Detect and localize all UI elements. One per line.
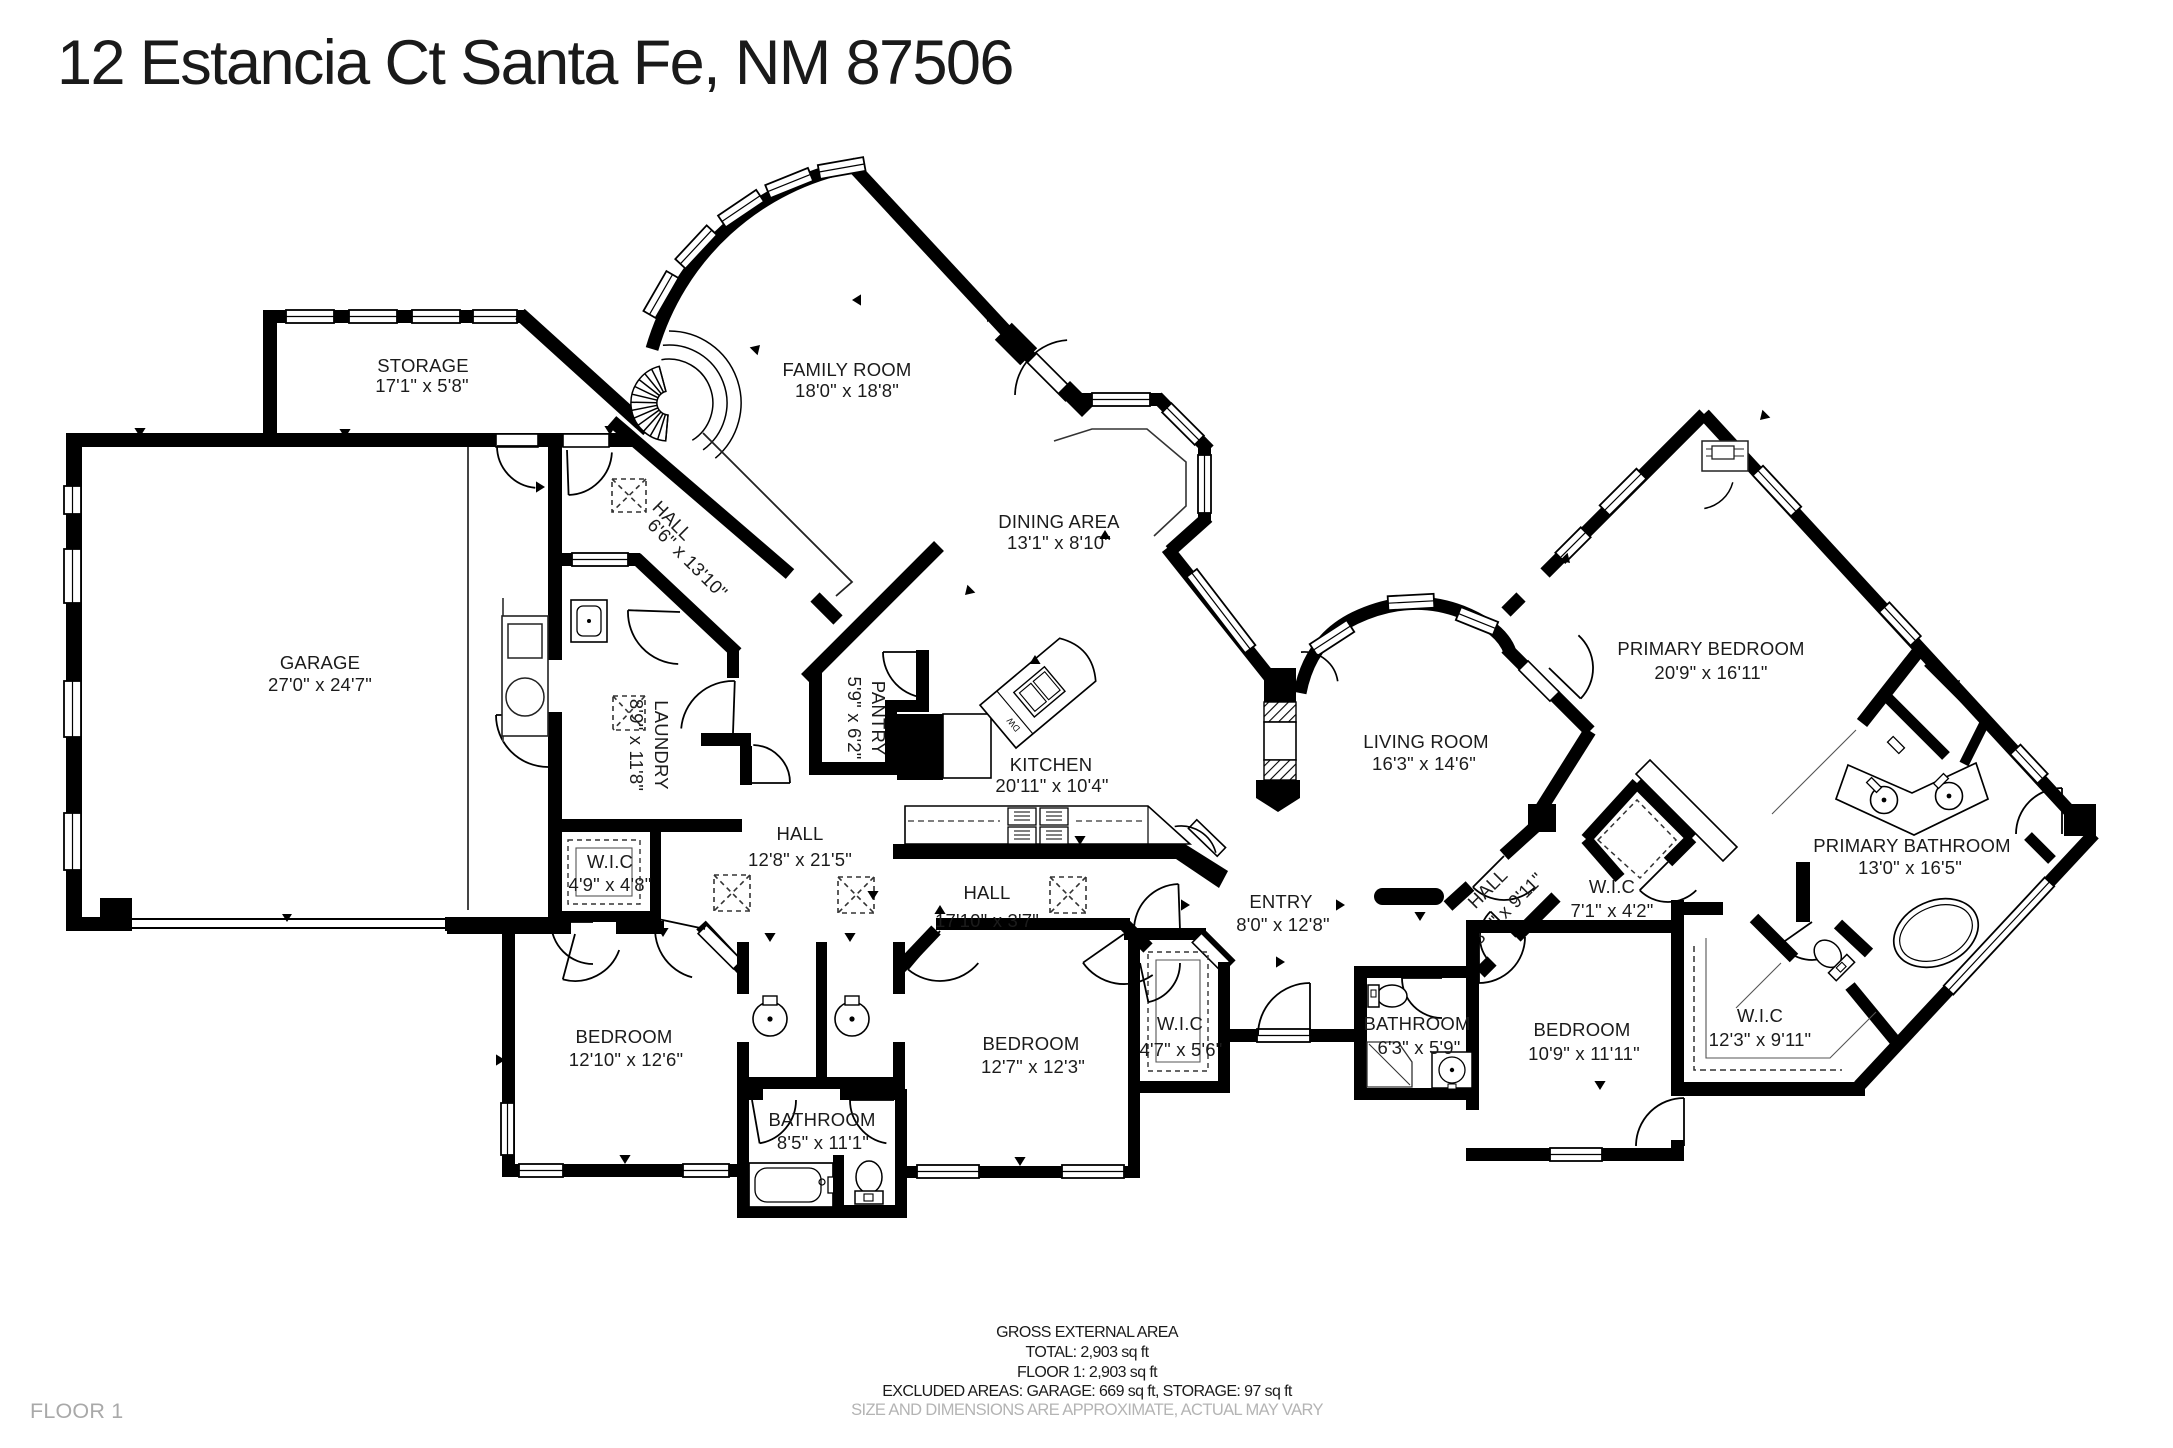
svg-text:FLOOR 1: 2,903 sq ft: FLOOR 1: 2,903 sq ft (1017, 1364, 1158, 1381)
svg-text:W.I.C: W.I.C (587, 851, 633, 872)
svg-text:W.I.C: W.I.C (1737, 1005, 1783, 1026)
svg-text:GROSS EXTERNAL AREA: GROSS EXTERNAL AREA (996, 1324, 1179, 1341)
svg-text:20'11" x 10'4": 20'11" x 10'4" (995, 775, 1108, 796)
svg-text:12 Estancia Ct Santa Fe, NM 87: 12 Estancia Ct Santa Fe, NM 87506 (57, 28, 1013, 98)
svg-text:LIVING ROOM: LIVING ROOM (1363, 731, 1489, 752)
svg-text:7'1" x 4'2": 7'1" x 4'2" (1570, 900, 1653, 921)
svg-text:W.I.C: W.I.C (1589, 876, 1635, 897)
svg-text:27'0" x 24'7": 27'0" x 24'7" (268, 674, 372, 695)
svg-text:4'9" x 4'8": 4'9" x 4'8" (568, 874, 651, 895)
svg-text:BATHROOM: BATHROOM (768, 1109, 875, 1130)
svg-text:PANTRY: PANTRY (868, 681, 889, 756)
svg-text:6'3" x 5'9": 6'3" x 5'9" (1377, 1037, 1460, 1058)
svg-text:16'3" x 14'6": 16'3" x 14'6" (1372, 753, 1476, 774)
svg-text:W.I.C: W.I.C (1157, 1013, 1203, 1034)
svg-text:BEDROOM: BEDROOM (983, 1033, 1080, 1054)
svg-text:12'8" x 21'5": 12'8" x 21'5" (748, 849, 852, 870)
svg-text:17'10" x 3'7": 17'10" x 3'7" (935, 910, 1039, 931)
svg-text:20'9" x 16'11": 20'9" x 16'11" (1654, 662, 1767, 683)
svg-text:EXCLUDED AREAS: GARAGE: 669 sq: EXCLUDED AREAS: GARAGE: 669 sq ft, STORA… (882, 1383, 1293, 1400)
svg-text:18'0" x 18'8": 18'0" x 18'8" (795, 380, 899, 401)
svg-text:PRIMARY BATHROOM: PRIMARY BATHROOM (1813, 835, 2010, 856)
svg-text:12'7" x 12'3": 12'7" x 12'3" (981, 1056, 1085, 1077)
svg-text:HALL: HALL (963, 882, 1010, 903)
svg-text:TOTAL: 2,903 sq ft: TOTAL: 2,903 sq ft (1026, 1344, 1150, 1361)
svg-text:LAUNDRY: LAUNDRY (651, 700, 672, 789)
svg-text:13'1" x 8'10": 13'1" x 8'10" (1007, 532, 1111, 553)
svg-text:8'9" x 11'8": 8'9" x 11'8" (626, 699, 647, 791)
svg-text:KITCHEN: KITCHEN (1010, 754, 1093, 775)
svg-text:10'9" x 11'11": 10'9" x 11'11" (1528, 1043, 1640, 1064)
svg-text:STORAGE: STORAGE (377, 355, 469, 376)
svg-text:DINING AREA: DINING AREA (998, 511, 1120, 532)
svg-text:ENTRY: ENTRY (1249, 891, 1312, 912)
svg-text:PRIMARY BEDROOM: PRIMARY BEDROOM (1617, 638, 1804, 659)
svg-text:17'1" x 5'8": 17'1" x 5'8" (375, 375, 469, 396)
svg-text:BEDROOM: BEDROOM (1534, 1019, 1631, 1040)
svg-text:SIZE AND DIMENSIONS ARE APPROX: SIZE AND DIMENSIONS ARE APPROXIMATE, ACT… (851, 1401, 1323, 1419)
svg-text:5'9" x 6'2": 5'9" x 6'2" (844, 676, 865, 759)
svg-text:GARAGE: GARAGE (280, 652, 360, 673)
svg-text:13'0" x 16'5": 13'0" x 16'5" (1858, 857, 1962, 878)
svg-text:8'5" x 11'1": 8'5" x 11'1" (777, 1132, 869, 1153)
svg-text:12'10" x 12'6": 12'10" x 12'6" (569, 1049, 684, 1070)
svg-text:4'7" x 5'6": 4'7" x 5'6" (1139, 1039, 1222, 1060)
svg-text:FLOOR 1: FLOOR 1 (30, 1399, 123, 1423)
svg-text:BATHROOM: BATHROOM (1363, 1013, 1470, 1034)
svg-text:FAMILY ROOM: FAMILY ROOM (783, 359, 912, 380)
svg-text:12'3" x 9'11": 12'3" x 9'11" (1709, 1029, 1812, 1050)
svg-text:BEDROOM: BEDROOM (576, 1026, 673, 1047)
svg-text:8'0" x 12'8": 8'0" x 12'8" (1236, 914, 1330, 935)
svg-text:HALL: HALL (776, 823, 823, 844)
